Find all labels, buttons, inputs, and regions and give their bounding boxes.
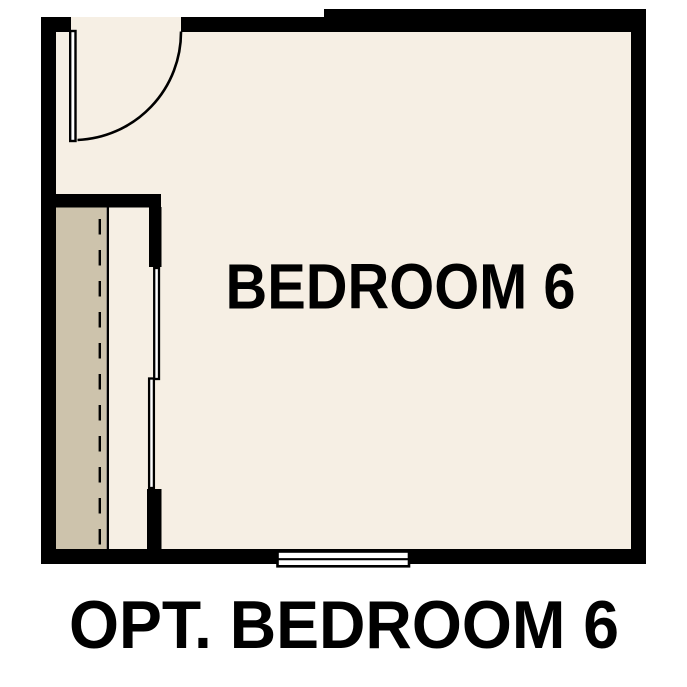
- svg-text:BEDROOM 6: BEDROOM 6: [226, 251, 576, 323]
- svg-text:OPT. BEDROOM 6: OPT. BEDROOM 6: [69, 587, 619, 663]
